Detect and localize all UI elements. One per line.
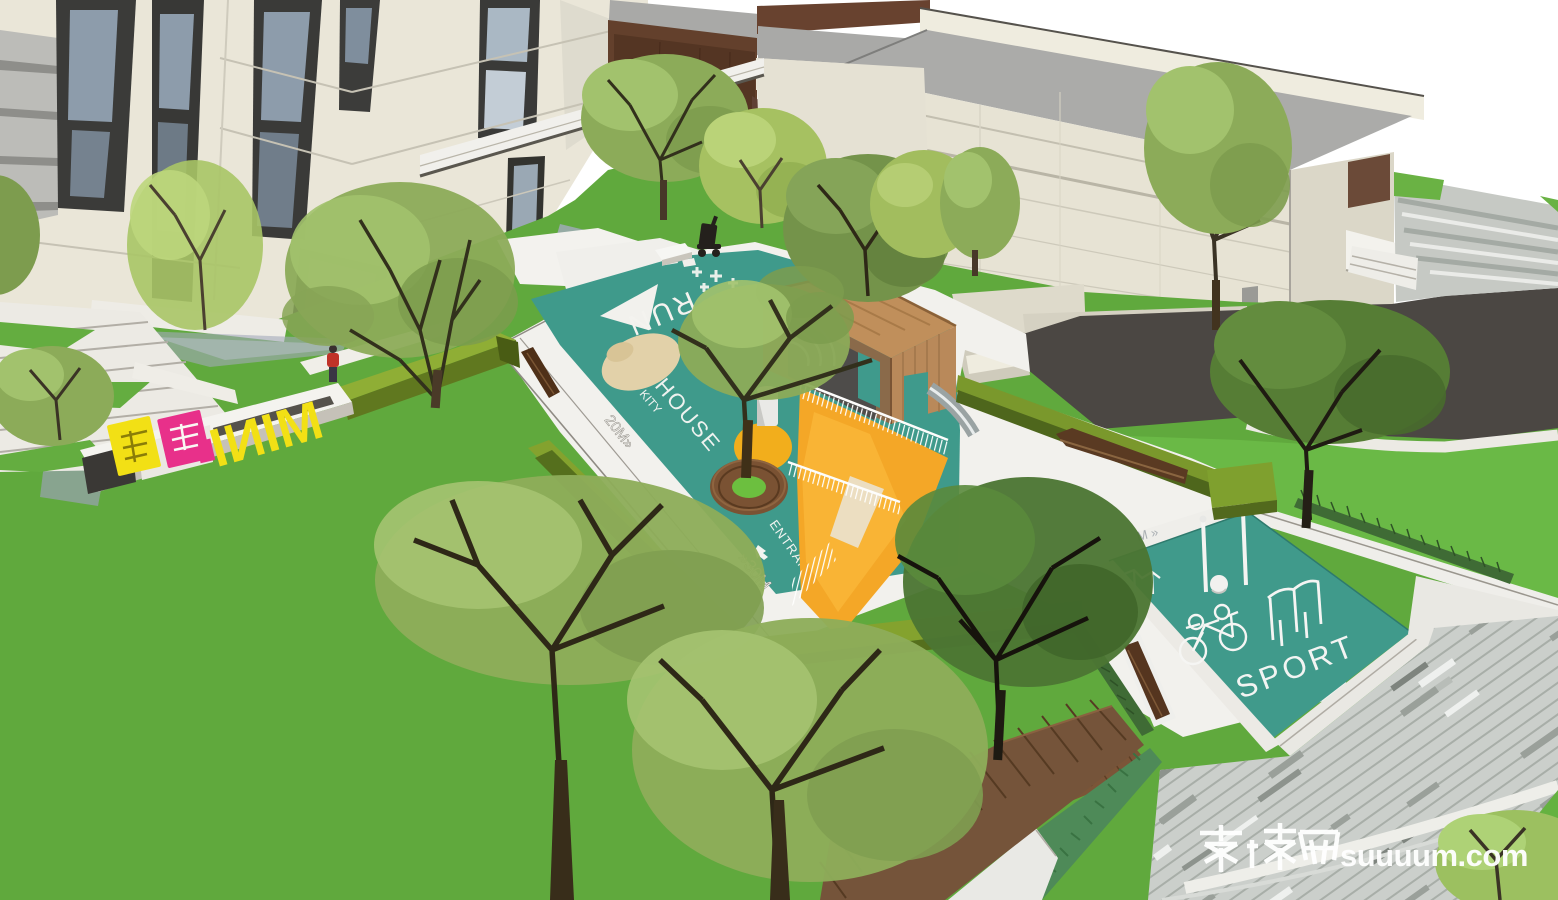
svg-text:suuuum.com: suuuum.com	[1340, 838, 1528, 873]
